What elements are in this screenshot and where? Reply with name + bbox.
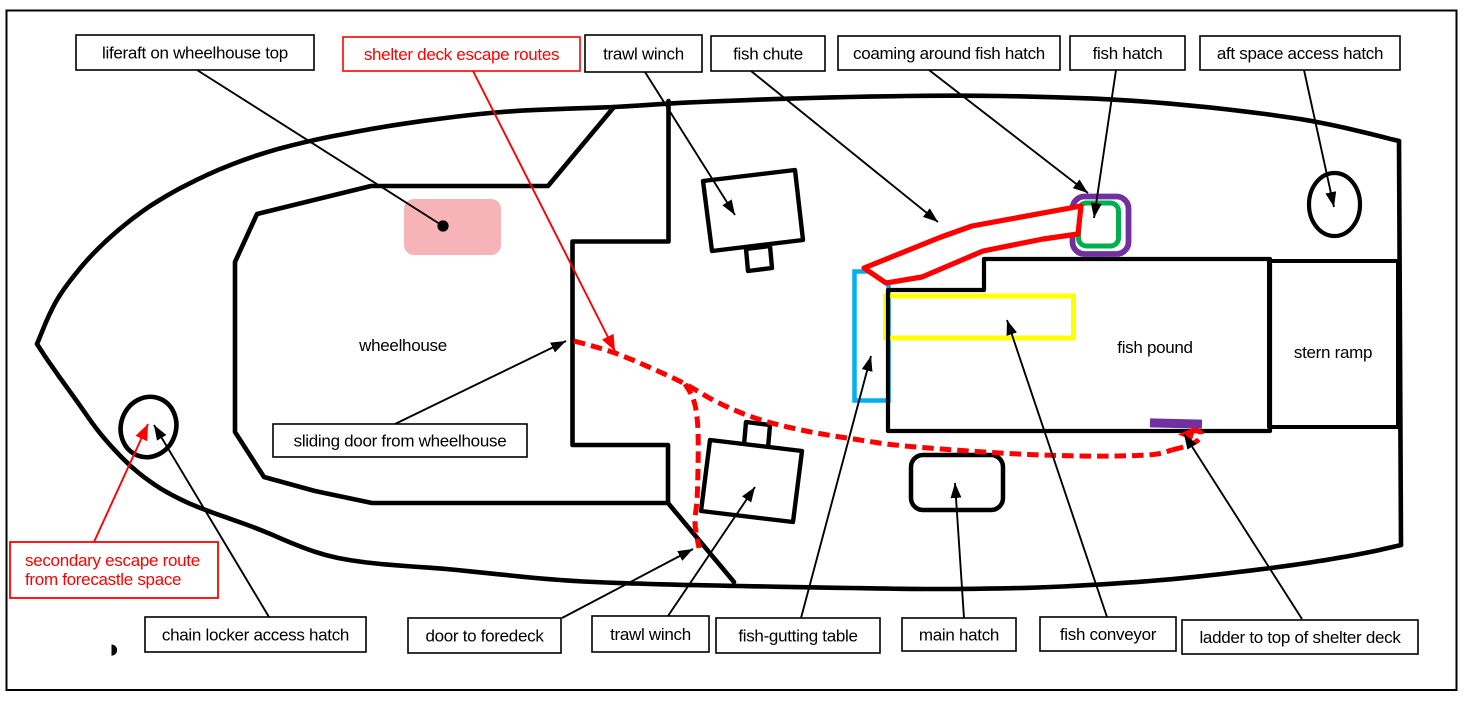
svg-text:trawl winch: trawl winch — [610, 625, 691, 644]
svg-text:shelter deck escape routes: shelter deck escape routes — [364, 45, 559, 64]
svg-text:fish hatch: fish hatch — [1093, 44, 1163, 63]
svg-text:coaming around fish hatch: coaming around fish hatch — [853, 44, 1045, 63]
svg-text:fish conveyor: fish conveyor — [1060, 625, 1157, 644]
svg-text:stern ramp: stern ramp — [1294, 343, 1372, 362]
svg-text:aft space access hatch: aft space access hatch — [1217, 44, 1383, 63]
svg-text:sliding door from wheelhouse: sliding door from wheelhouse — [294, 432, 507, 451]
svg-text:fish chute: fish chute — [733, 45, 803, 64]
svg-text:chain locker access hatch: chain locker access hatch — [162, 626, 349, 645]
svg-text:wheelhouse: wheelhouse — [358, 336, 447, 355]
svg-text:trawl winch: trawl winch — [603, 45, 684, 64]
svg-text:main hatch: main hatch — [919, 626, 999, 645]
svg-text:door to foredeck: door to foredeck — [425, 627, 544, 646]
svg-text:fish pound: fish pound — [1117, 338, 1192, 357]
svg-text:fish-gutting table: fish-gutting table — [738, 627, 857, 646]
svg-text:secondary escape route: secondary escape route — [25, 551, 200, 570]
svg-text:from forecastle space: from forecastle space — [25, 570, 181, 589]
svg-text:liferaft on wheelhouse top: liferaft on wheelhouse top — [102, 44, 288, 63]
svg-text:ladder to top of shelter deck: ladder to top of shelter deck — [1199, 628, 1401, 647]
